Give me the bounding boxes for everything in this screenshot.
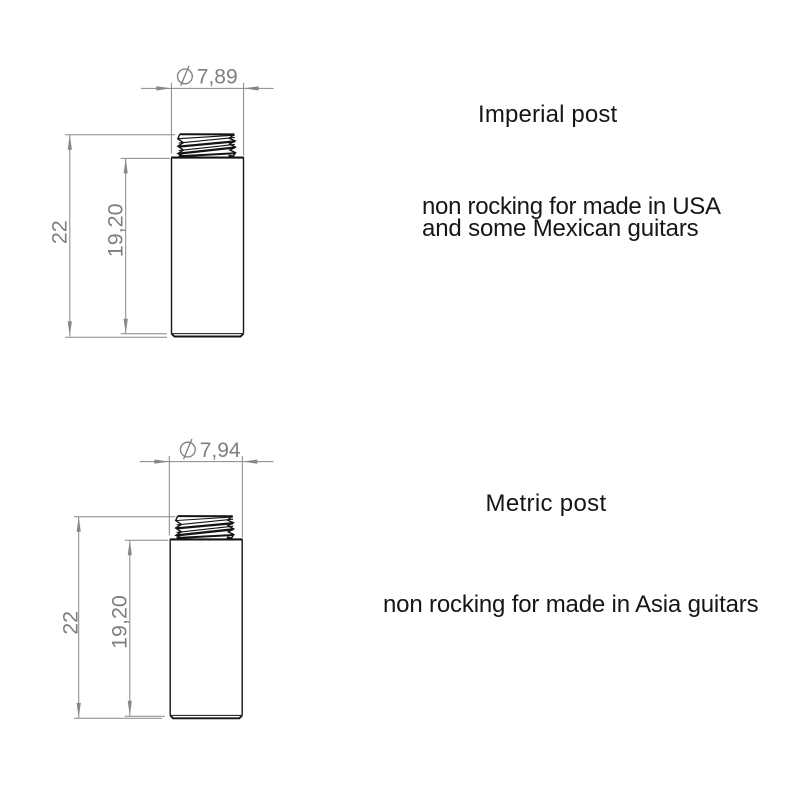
svg-text:19,20: 19,20 [104, 203, 128, 257]
svg-text:19,20: 19,20 [108, 595, 132, 649]
svg-text:22: 22 [48, 220, 72, 244]
svg-text:22: 22 [58, 611, 82, 635]
svg-text:7,94: 7,94 [200, 439, 241, 462]
svg-text:7,89: 7,89 [197, 66, 238, 89]
